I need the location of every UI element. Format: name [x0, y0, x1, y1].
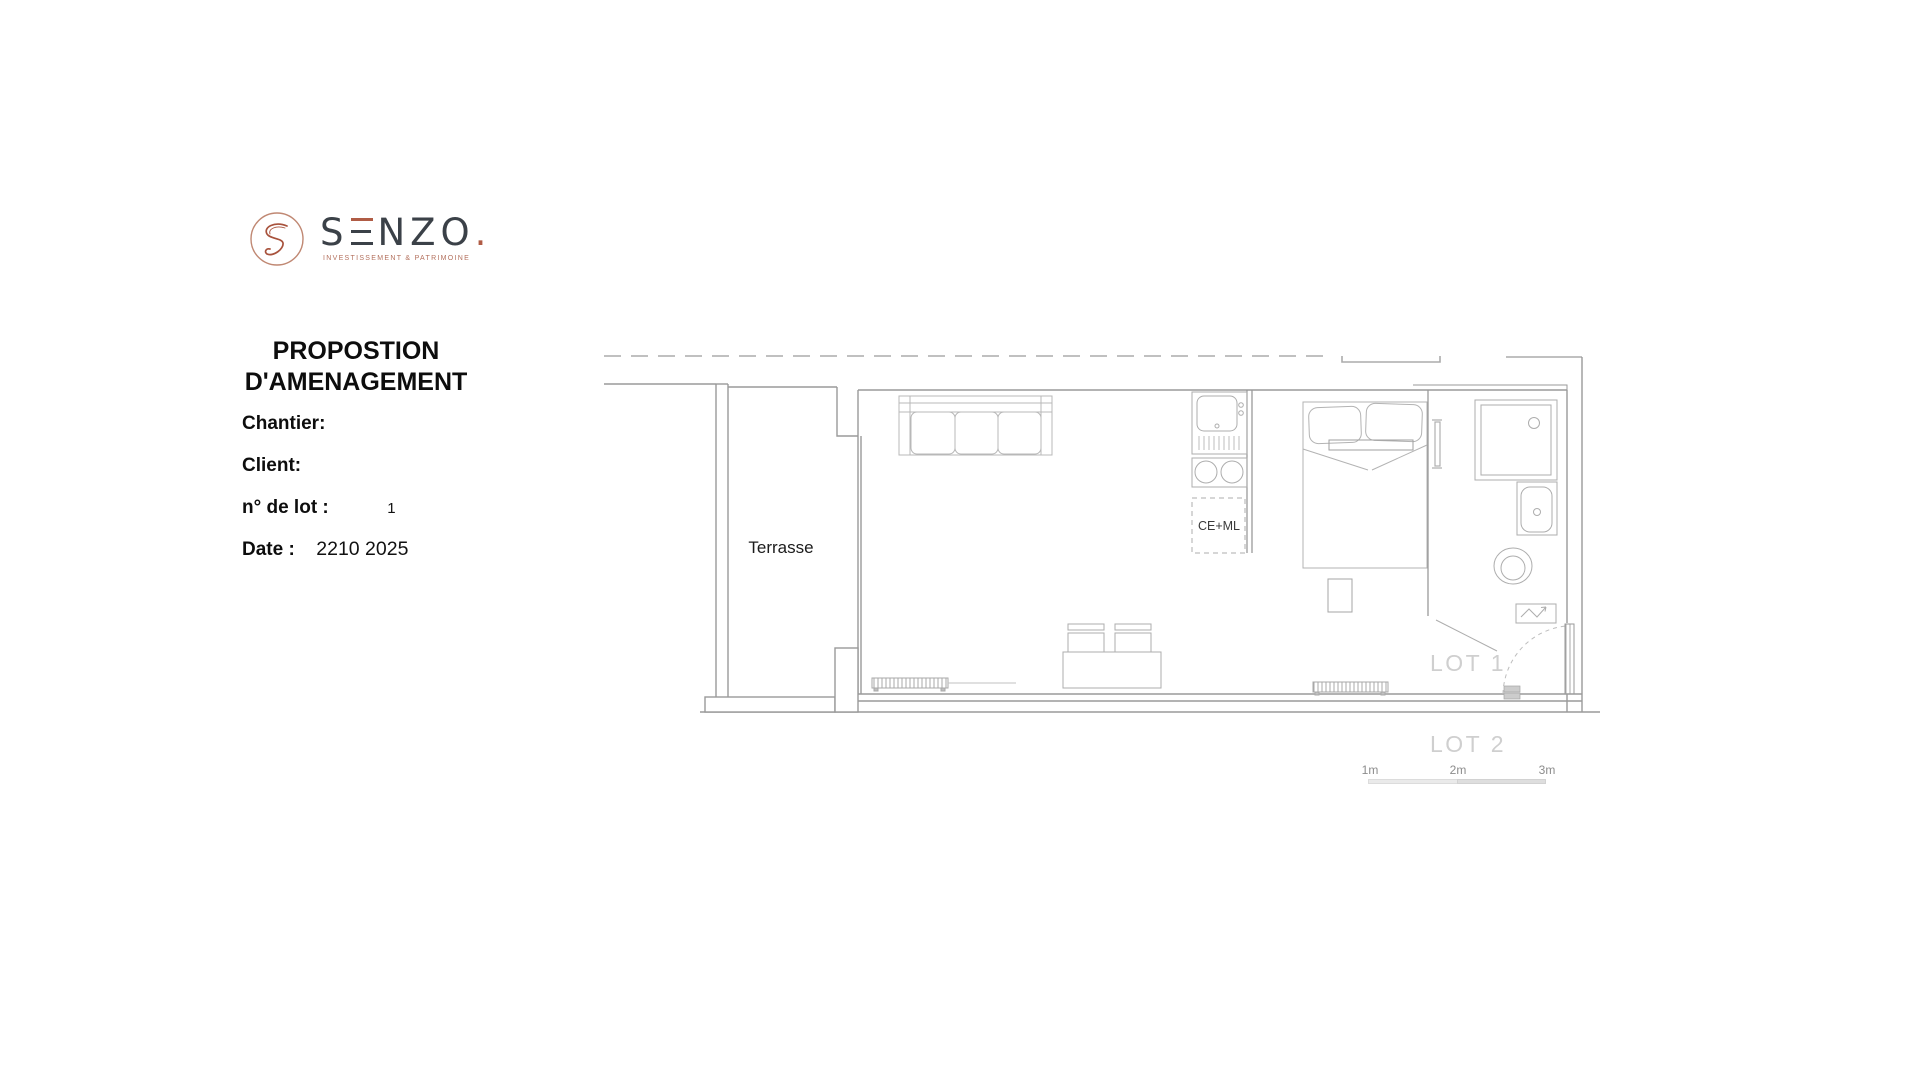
radiator-right [1313, 682, 1388, 695]
scale-3m-label: 3m [1532, 763, 1562, 777]
field-chantier-label: Chantier: [242, 413, 325, 434]
bathroom-radiator [1516, 604, 1556, 623]
dining-table [1063, 624, 1161, 688]
lot2-label: LOT 2 [1430, 731, 1540, 758]
field-lot-number-label: n° de lot : [242, 497, 329, 518]
field-date-value: 2210 2025 [316, 538, 408, 560]
wordmark-letters-nzo: NZO [378, 211, 475, 254]
stool [1115, 633, 1151, 652]
field-date: Date : 2210 2025 [242, 538, 408, 561]
terrasse-label: Terrasse [720, 538, 842, 558]
bed [1303, 402, 1427, 612]
scale-2m-label: 2m [1443, 763, 1473, 777]
sofa [899, 396, 1052, 455]
wordmark-letter-s: S [320, 211, 349, 254]
page-title-line2: D'AMENAGEMENT [200, 367, 512, 398]
kitchen-sink [1197, 396, 1237, 431]
stool [1068, 633, 1104, 652]
field-chantier: Chantier: [242, 413, 325, 435]
door-leaf [1565, 624, 1574, 694]
cooktop-burner [1195, 461, 1217, 483]
scale-1m-label: 1m [1355, 763, 1385, 777]
toilet [1494, 548, 1532, 584]
boundary-dashed-line [604, 356, 1582, 362]
proposal-sheet: SNZO. INVESTISSEMENT & PATRIMOINE PROPOS… [0, 0, 1920, 1080]
bedside-table [1328, 579, 1352, 612]
radiator-left [872, 678, 1016, 691]
cooktop-burner [1221, 461, 1243, 483]
field-date-label: Date : [242, 539, 295, 560]
kitchen-ce-ml-label: CE+ML [1192, 519, 1246, 533]
field-lot-number-value: 1 [387, 500, 395, 517]
senzo-wordmark: SNZO. [320, 211, 486, 253]
senzo-logo-icon [249, 211, 305, 267]
page-title-line1: PROPOSTION [200, 336, 512, 367]
scale-bar [1368, 779, 1546, 784]
field-lot-number: n° de lot : 1 [242, 497, 396, 519]
wordmark-letter-e [351, 218, 373, 245]
logo-tagline: INVESTISSEMENT & PATRIMOINE [323, 255, 483, 262]
bathroom [1428, 390, 1557, 651]
lot1-label: LOT 1 [1430, 650, 1540, 677]
shower [1475, 400, 1557, 480]
page-title: PROPOSTION D'AMENAGEMENT [200, 336, 512, 399]
pillow [1365, 403, 1422, 442]
towel-rail [1432, 420, 1442, 468]
field-client: Client: [242, 455, 301, 477]
floor-plan [580, 270, 1620, 800]
wordmark-dot: . [475, 211, 487, 254]
field-client-label: Client: [242, 455, 301, 476]
bathroom-door [1436, 620, 1497, 651]
pillow [1308, 406, 1361, 444]
